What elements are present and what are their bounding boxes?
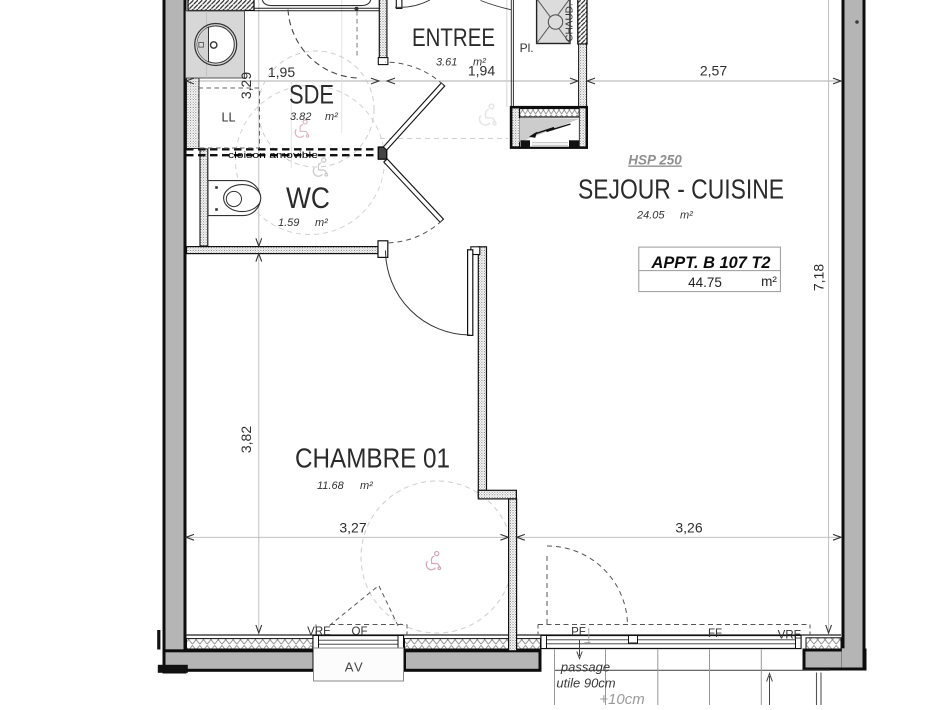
svg-text:AV: AV xyxy=(345,660,364,675)
svg-text:Pl.: Pl. xyxy=(520,41,534,55)
svg-text:1.59: 1.59 xyxy=(278,217,299,229)
svg-text:24.05: 24.05 xyxy=(636,210,665,222)
svg-text:3,26: 3,26 xyxy=(675,520,702,536)
svg-text:CHAUD.: CHAUD. xyxy=(565,3,576,41)
svg-text:m²: m² xyxy=(680,210,693,222)
svg-text:LL: LL xyxy=(222,111,236,125)
svg-text:FF: FF xyxy=(708,628,722,640)
svg-text:7,18: 7,18 xyxy=(811,264,827,291)
svg-text:3.61: 3.61 xyxy=(436,57,457,69)
svg-text:passage: passage xyxy=(560,660,610,675)
svg-text:PF: PF xyxy=(571,627,586,639)
svg-text:SEJOUR - CUISINE: SEJOUR - CUISINE xyxy=(578,174,784,205)
svg-text:m²: m² xyxy=(473,57,486,69)
svg-text:HSP 250: HSP 250 xyxy=(628,153,682,168)
svg-text:utile 90cm: utile 90cm xyxy=(556,676,615,691)
svg-text:CHAMBRE 01: CHAMBRE 01 xyxy=(295,443,450,474)
svg-text:+10cm: +10cm xyxy=(599,691,644,705)
svg-text:m²: m² xyxy=(360,480,373,492)
svg-text:VRE: VRE xyxy=(307,626,331,638)
svg-text:3.82: 3.82 xyxy=(290,111,311,123)
svg-text:m²: m² xyxy=(315,217,328,229)
svg-text:OF: OF xyxy=(352,626,368,638)
svg-text:3,82: 3,82 xyxy=(238,426,254,453)
svg-text:ENTREE: ENTREE xyxy=(412,24,495,52)
svg-text:11.68: 11.68 xyxy=(317,480,345,492)
svg-text:44.75: 44.75 xyxy=(688,275,722,290)
svg-text:m²: m² xyxy=(325,111,338,123)
svg-text:APPT. B 107 T2: APPT. B 107 T2 xyxy=(651,253,771,272)
svg-text:VRE: VRE xyxy=(778,630,802,642)
svg-text:3,27: 3,27 xyxy=(339,520,366,536)
svg-text:m²: m² xyxy=(761,274,777,289)
svg-text:SDE: SDE xyxy=(289,80,334,110)
svg-text:1,95: 1,95 xyxy=(268,64,295,80)
svg-text:2,57: 2,57 xyxy=(700,63,727,79)
svg-text:cloison amovible: cloison amovible xyxy=(228,150,318,161)
svg-text:WC: WC xyxy=(286,182,330,215)
svg-text:3,29: 3,29 xyxy=(238,72,254,99)
